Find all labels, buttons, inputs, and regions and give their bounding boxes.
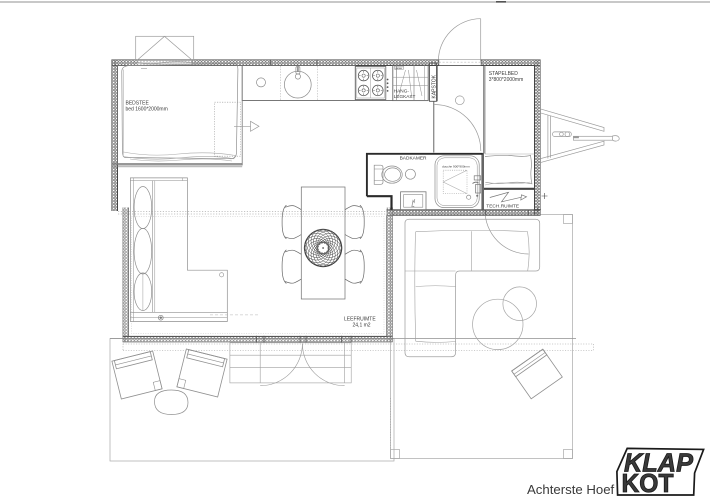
svg-text:HANG-: HANG- bbox=[394, 89, 410, 94]
svg-text:TECH.RUIMTE: TECH.RUIMTE bbox=[486, 203, 519, 209]
svg-text:24,1 m2: 24,1 m2 bbox=[353, 323, 371, 329]
svg-text:KAPSTOK: KAPSTOK bbox=[431, 74, 437, 98]
svg-text:douche 900*900mm: douche 900*900mm bbox=[442, 164, 470, 168]
svg-text:bed 1600*2000mm: bed 1600*2000mm bbox=[126, 107, 168, 113]
svg-text:geiser: geiser bbox=[395, 66, 402, 70]
svg-text:BADKAMER: BADKAMER bbox=[400, 156, 427, 162]
svg-text:LEGKAST: LEGKAST bbox=[394, 94, 416, 99]
svg-text:Achterste Hoef: Achterste Hoef bbox=[527, 482, 615, 497]
svg-text:KOT: KOT bbox=[622, 468, 674, 498]
svg-text:3*800*2000mm: 3*800*2000mm bbox=[489, 77, 523, 83]
